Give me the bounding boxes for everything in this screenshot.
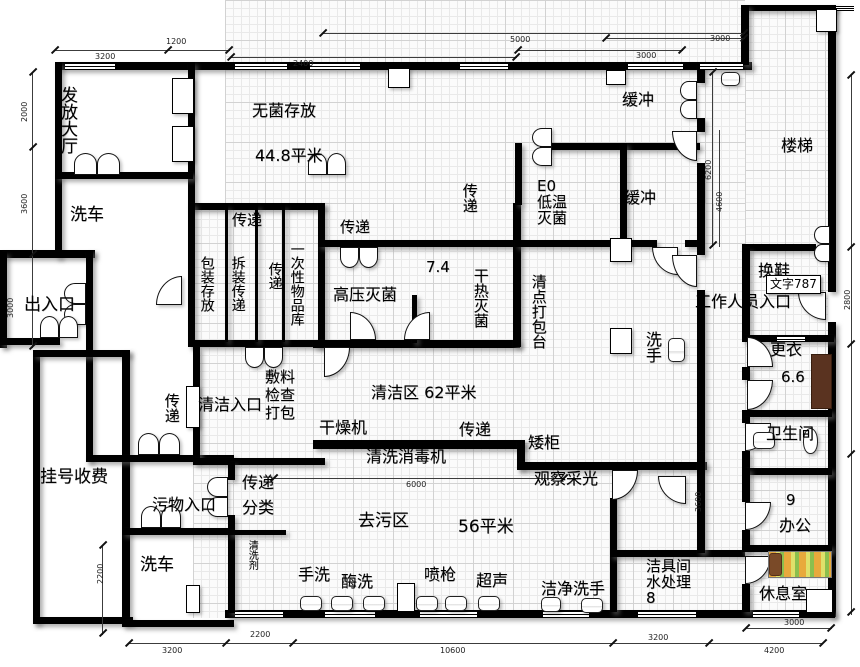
room-sterile-storage: 无菌存放 [252, 102, 316, 120]
dimension-label: 6000 [406, 480, 426, 489]
column-icon [186, 585, 200, 613]
label-observation-light: 观察采光 [534, 470, 598, 488]
room-buffer-1: 缓冲 [622, 91, 654, 109]
table-icon [610, 238, 632, 262]
door-leaf-icon [327, 153, 346, 175]
dimension-line [517, 50, 683, 51]
label-hand-wash: 洗手 [643, 331, 661, 363]
room-rest-room: 休息室 [759, 585, 807, 603]
wall-segment [0, 338, 60, 345]
door-leaf-icon [156, 276, 182, 305]
window-symbol [310, 63, 360, 70]
wardrobe-icon [811, 354, 832, 409]
dimension-label: 3000 [6, 298, 15, 318]
sink-icon [416, 596, 438, 611]
window-symbol [460, 63, 508, 70]
wall-segment [742, 584, 750, 612]
room-dressing-check-2: 检查 [265, 387, 295, 404]
label-decontamination-area: 56平米 [458, 518, 514, 537]
label-transfer-pass-west: 传递 [163, 393, 180, 423]
label-detergent: 清洗剂 [246, 540, 257, 570]
station-spray-gun: 喷枪 [424, 566, 456, 584]
door-leaf-icon [532, 128, 552, 147]
room-entrance-exit: 出入口 [24, 296, 75, 315]
sink-icon [445, 596, 467, 611]
label-6-6: 6.6 [781, 369, 805, 386]
wall-segment [515, 240, 657, 247]
dimension-line [322, 33, 745, 34]
station-enzyme-wash: 酶洗 [341, 573, 373, 591]
room-toilet: 卫生间 [766, 425, 814, 443]
door-leaf-icon [207, 477, 228, 497]
room-cart-wash-2: 洗车 [140, 556, 174, 575]
dimension-label: 2200 [96, 564, 105, 584]
room-changing: 更衣 [770, 341, 802, 359]
dimension-label: 3000 [636, 51, 656, 60]
dimension-label: 1200 [166, 37, 186, 46]
door-leaf-icon [97, 153, 120, 175]
dimension-label: 3000 [710, 34, 730, 43]
room-buffer-2: 缓冲 [624, 189, 656, 207]
wall-segment [742, 468, 832, 475]
window-symbol [325, 611, 375, 618]
window-symbol [628, 63, 683, 70]
dimension-label: 2000 [20, 102, 29, 122]
tile-grid-area [225, 0, 745, 62]
dimension-label: 2400 [293, 59, 313, 68]
selected-text-box[interactable]: 文字787 [766, 275, 821, 294]
dimension-line [230, 57, 517, 58]
dimension-label: 3600 [20, 194, 29, 214]
dimension-line [273, 478, 565, 479]
wall-segment [122, 350, 130, 624]
wall-segment [228, 462, 235, 480]
dimension-tick [99, 541, 107, 549]
label-sterile-storage-area: 44.8平米 [255, 147, 323, 165]
door-leaf-icon [359, 247, 378, 268]
wall-segment [193, 458, 325, 465]
room-clean-area: 清洁区 62平米 [371, 384, 476, 402]
sink-icon [300, 596, 322, 611]
sink-icon [363, 596, 385, 611]
room-dry-heat-sterilization: 干热灭菌 [472, 268, 489, 328]
wall-segment [742, 451, 750, 468]
wall-segment [697, 290, 705, 452]
door-leaf-icon [40, 316, 59, 338]
wall-segment [742, 468, 750, 502]
room-decontamination: 去污区 [358, 512, 409, 531]
equip-dryer: 干燥机 [319, 419, 367, 437]
equip-washer-disinfector: 清洗消毒机 [366, 448, 446, 466]
floor-plan: 发放大厅洗车出入口挂号收费污物入口洗车传递分类清洗剂传递清洁入口敷料检查打包包装… [0, 0, 860, 667]
wall-segment [122, 620, 234, 627]
wall-segment [610, 550, 745, 557]
dimension-label: 4200 [764, 646, 784, 655]
wall-segment [697, 118, 705, 132]
door-leaf-icon [680, 81, 697, 100]
door-leaf-icon [680, 100, 697, 119]
wallbox-icon [606, 70, 626, 85]
room-cleaning-tools-3: 8 [646, 590, 656, 607]
door-leaf-icon [138, 433, 159, 455]
wall-segment [0, 250, 95, 258]
label-clean-hand-wash: 洁净洗手 [541, 580, 605, 598]
room-transfer-sorting-2: 分类 [242, 499, 274, 517]
door-leaf-icon [74, 153, 97, 175]
label-counting-packing-table: 清点打包台 [530, 274, 547, 349]
room-cart-wash-1: 洗车 [70, 206, 104, 225]
sink-icon [581, 598, 603, 613]
equip-low-cabinet: 矮柜 [528, 434, 560, 452]
label-7-4: 7.4 [426, 259, 450, 276]
cornerbox-icon [816, 9, 837, 32]
wall-segment [742, 367, 750, 380]
dimension-line [851, 75, 852, 615]
room-disposable-items-store: 一次性物品库 [288, 242, 304, 326]
sink-icon [541, 597, 561, 612]
table-icon [610, 328, 632, 354]
sink-icon [478, 596, 500, 611]
column-icon [397, 583, 415, 612]
door-leaf-icon [814, 226, 830, 244]
label-transfer-4: 传递 [459, 421, 491, 439]
door-leaf-icon [532, 147, 552, 166]
room-staff-entrance: 工作人员入口 [695, 293, 791, 311]
dimension-label: 5000 [510, 35, 530, 44]
room-dressing-check-3: 打包 [265, 405, 295, 422]
door-leaf-icon [59, 316, 78, 338]
dimension-tick [827, 624, 835, 632]
dimension-label: 6200 [704, 160, 713, 180]
dimension-label: 2200 [250, 630, 270, 639]
window-symbol [420, 611, 477, 618]
wall-segment [513, 203, 521, 347]
wall-segment [33, 350, 130, 357]
label-transfer-3: 传递 [461, 183, 478, 213]
room-stairs: 楼梯 [781, 137, 813, 155]
cornerbox-icon [806, 589, 833, 613]
sink-icon [668, 338, 685, 362]
tile-grid-area [225, 62, 745, 203]
passbox-icon [172, 78, 194, 114]
room-dirty-entrance: 污物入口 [152, 496, 216, 514]
dimension-line [128, 643, 823, 644]
wallbox-icon [388, 68, 410, 88]
dimension-label: 3200 [95, 52, 115, 61]
window-symbol [836, 6, 854, 11]
sink-icon [721, 72, 740, 86]
door-leaf-icon [814, 244, 830, 262]
wall-segment [188, 203, 195, 347]
label-transfer-mid: 传递 [266, 262, 282, 290]
dimension-tick [29, 143, 37, 151]
wall-segment [318, 240, 518, 247]
dimension-tick [819, 639, 827, 647]
room-distribution-hall: 发放大厅 [57, 86, 76, 154]
label-9: 9 [786, 492, 796, 509]
pillow-icon [769, 553, 782, 576]
window-symbol [65, 63, 115, 70]
room-registration-fees: 挂号收费 [40, 468, 108, 487]
room-office: 办公 [779, 517, 811, 535]
dimension-tick [29, 68, 37, 76]
window-symbol [700, 63, 743, 70]
dimension-label: 3000 [784, 618, 804, 627]
station-hand-wash: 手洗 [298, 566, 330, 584]
wall-segment [225, 205, 228, 342]
label-transfer-2: 传递 [340, 219, 370, 236]
room-dressing-check-1: 敷料 [265, 369, 295, 386]
dimension-label: 3200 [162, 646, 182, 655]
door-leaf-icon [264, 347, 283, 368]
station-ultrasonic: 超声 [476, 572, 508, 590]
dimension-label: 10600 [440, 646, 465, 655]
room-clean-entrance: 清洁入口 [198, 396, 262, 414]
dimension-line [55, 50, 230, 51]
dimension-label: 2800 [843, 290, 852, 310]
door-leaf-icon [159, 433, 180, 455]
wall-segment [318, 203, 325, 347]
wall-segment [228, 530, 286, 535]
dimension-line [719, 130, 720, 247]
dimension-line [745, 628, 832, 629]
room-eo-line-3: 灭菌 [537, 210, 567, 227]
room-transfer-sorting-1: 传递 [242, 474, 274, 492]
label-transfer-1: 传递 [232, 212, 262, 229]
wall-segment [742, 410, 832, 417]
window-symbol [753, 611, 799, 618]
wall-segment [122, 528, 230, 535]
room-high-pressure-sterilization: 高压灭菌 [333, 286, 397, 304]
sink-icon [331, 596, 353, 611]
window-symbol [638, 611, 696, 618]
room-packaging-storage: 包装存放 [198, 256, 214, 312]
dimension-line [102, 545, 103, 635]
passbox-icon [172, 126, 194, 162]
wall-segment [33, 350, 40, 624]
door-leaf-icon [245, 347, 264, 368]
dimension-label: 3600 [694, 492, 703, 512]
window-symbol [235, 63, 287, 70]
wall-segment [742, 244, 816, 251]
wall-segment [33, 617, 133, 624]
window-symbol [235, 611, 283, 618]
wall-segment [515, 143, 522, 205]
room-disassembly-transfer: 拆装传递 [229, 256, 245, 312]
dimension-label: 4600 [715, 192, 724, 212]
dimension-tick [99, 629, 107, 637]
dimension-label: 3200 [648, 633, 668, 642]
door-leaf-icon [340, 247, 359, 268]
